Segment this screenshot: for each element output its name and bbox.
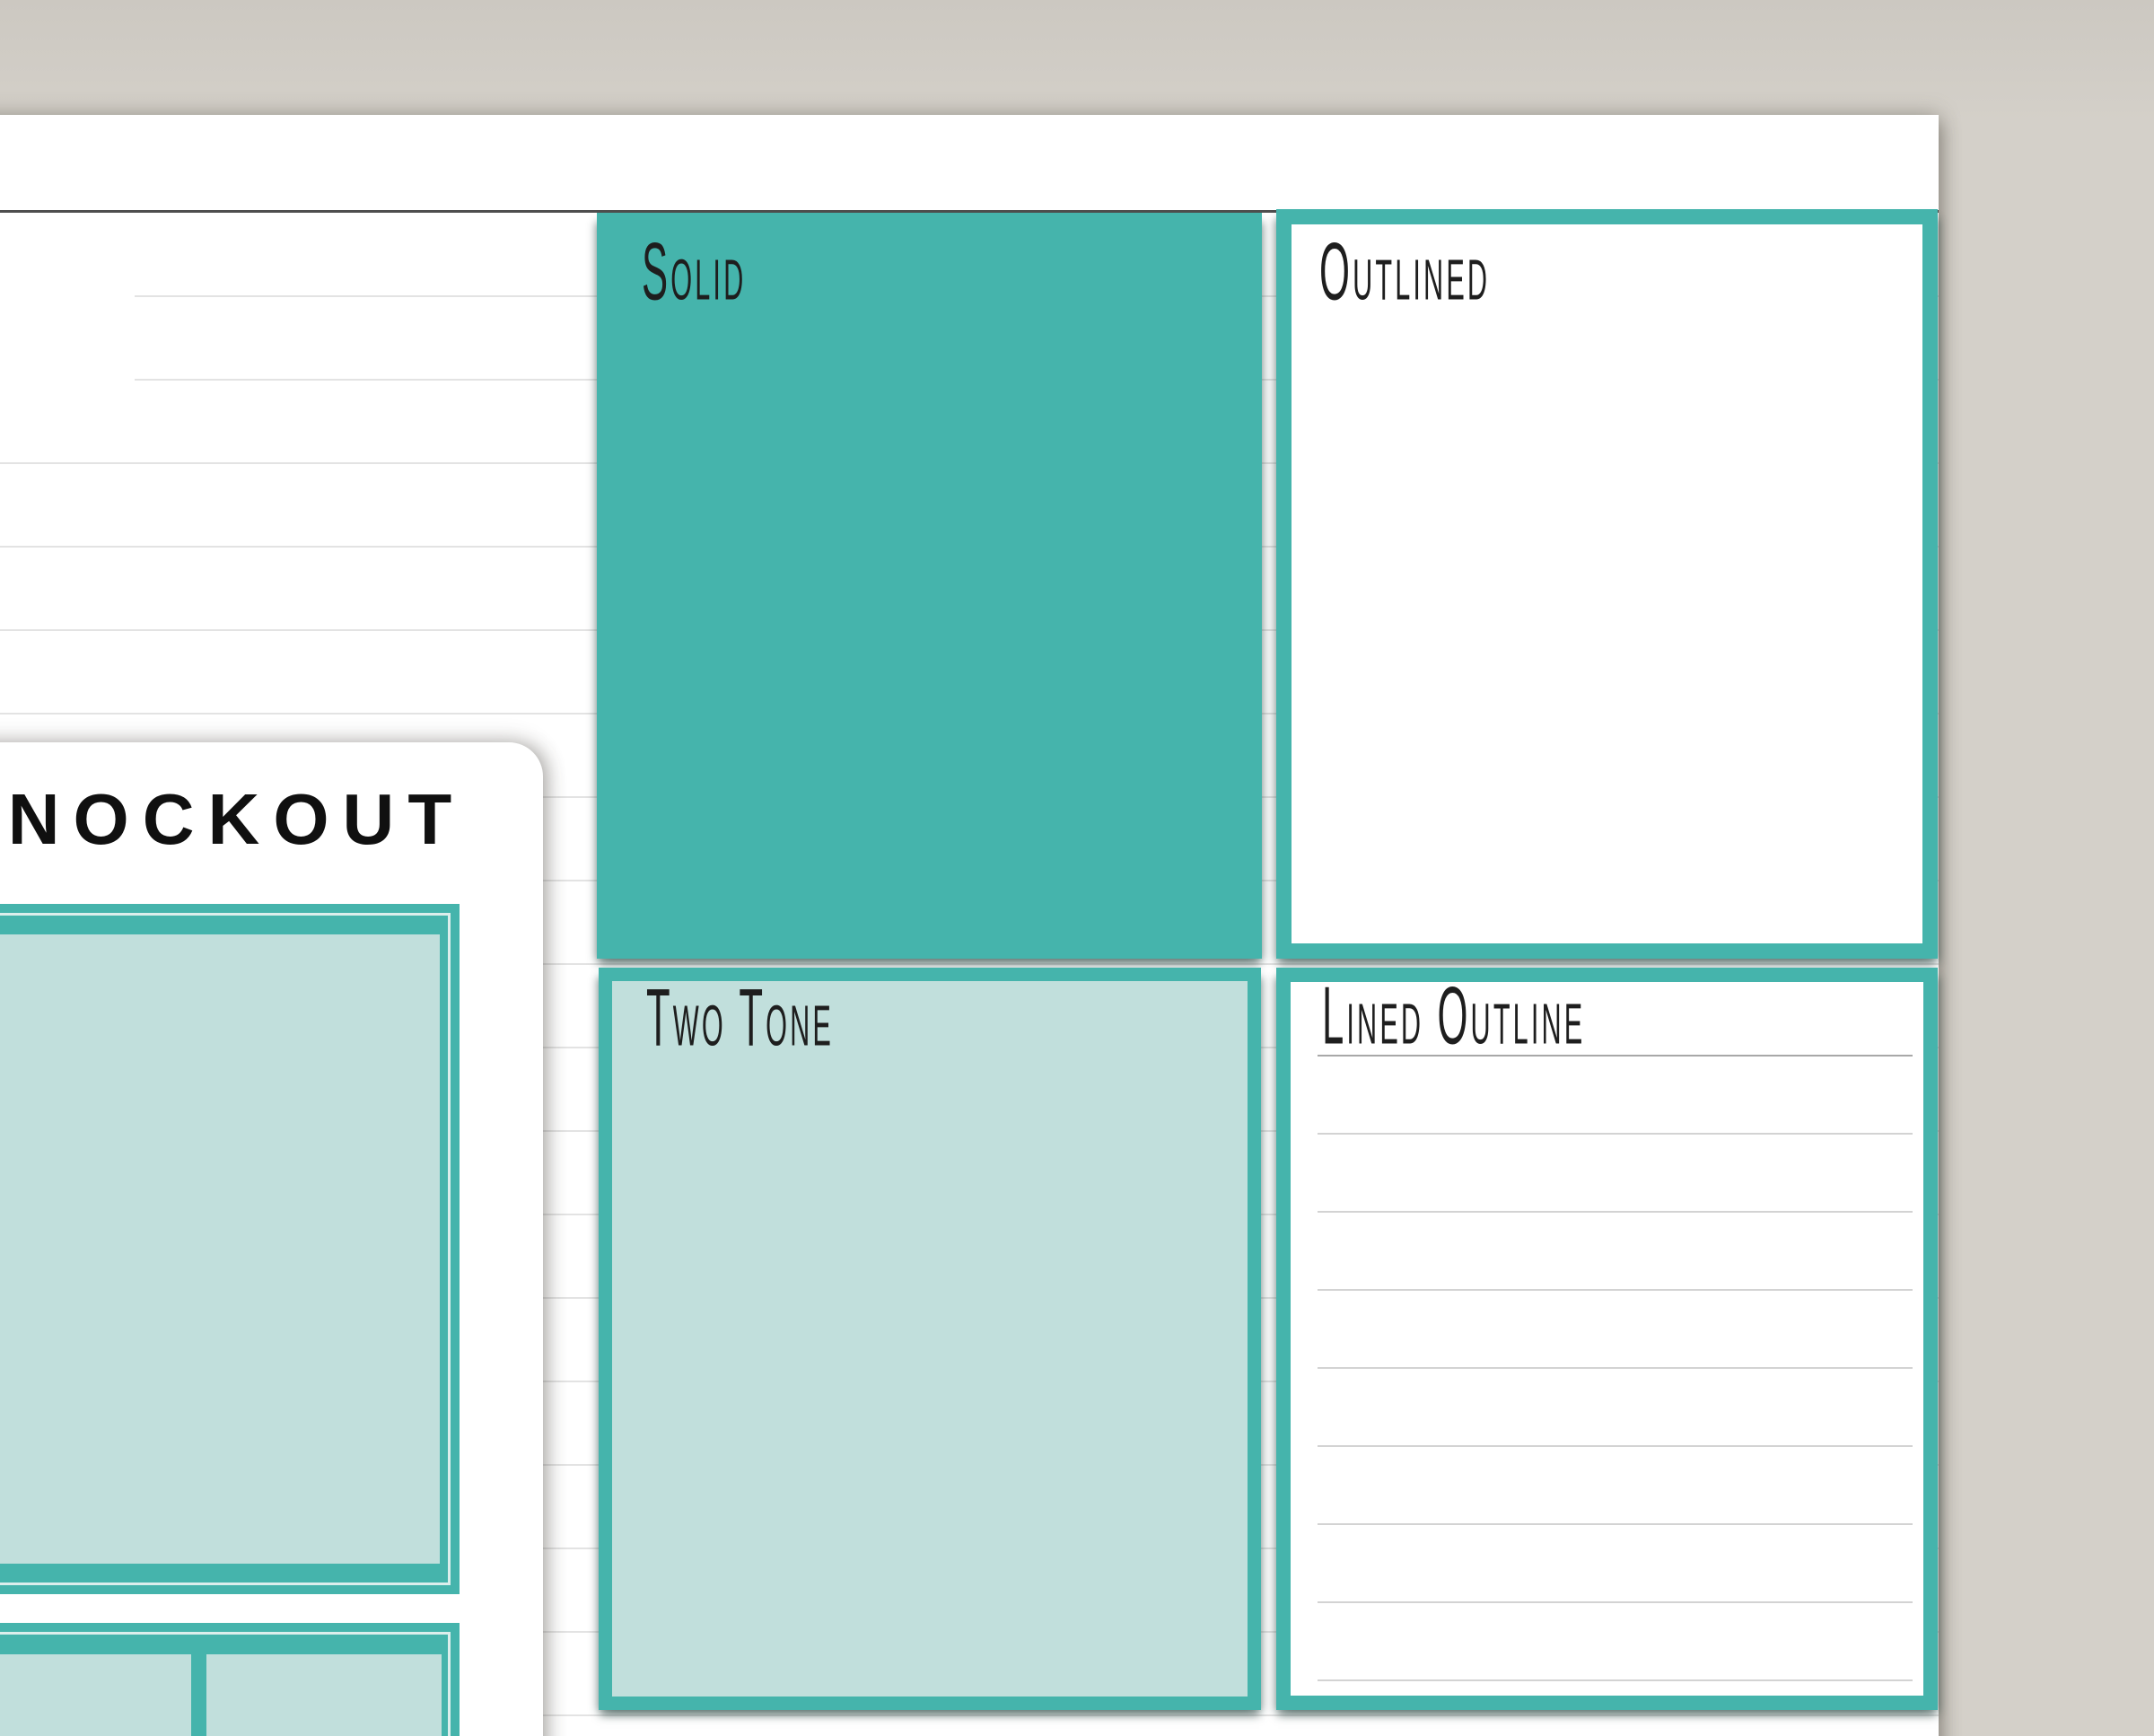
knockout-preview-box-fill: [0, 934, 440, 1564]
knockout-card-title: KNOCKOUT: [0, 784, 465, 855]
sticker-ruled-line: [1318, 1289, 1913, 1291]
knockout-preview-cell-right: [206, 1654, 442, 1736]
sticker-label: Solid: [642, 231, 746, 312]
sticker-ruled-line: [1318, 1679, 1913, 1681]
sticker-ruled-line: [1318, 1601, 1913, 1603]
sticker-label: Outlined: [1319, 231, 1490, 312]
sticker-ruled-line: [1318, 1133, 1913, 1135]
sticker-outlined: Outlined: [1276, 209, 1938, 959]
sticker-ruled-line: [1318, 1445, 1913, 1447]
sticker-ruled-line: [1318, 1367, 1913, 1369]
knockout-preview-box-large: [0, 904, 460, 1594]
sticker-two-tone: Two Tone: [599, 968, 1261, 1710]
sticker-label: Lined Outline: [1322, 975, 1585, 1057]
sticker-ruled-line: [1318, 1055, 1913, 1057]
sticker-lined-outline: Lined Outline: [1276, 968, 1938, 1710]
sticker-ruled-line: [1318, 1523, 1913, 1525]
sticker-ruled-line: [1318, 1211, 1913, 1213]
sticker-style-mockup: Solid Outlined Two Tone Lined Outline KN…: [0, 0, 2154, 1736]
knockout-preview-box-split: [0, 1623, 460, 1736]
sticker-label: Two Tone: [646, 977, 834, 1058]
planner-page: Solid Outlined Two Tone Lined Outline KN…: [0, 115, 1939, 1736]
knockout-preview-cell-left: [0, 1654, 191, 1736]
sticker-solid: Solid: [597, 213, 1262, 959]
knockout-card: KNOCKOUT: [0, 742, 543, 1736]
